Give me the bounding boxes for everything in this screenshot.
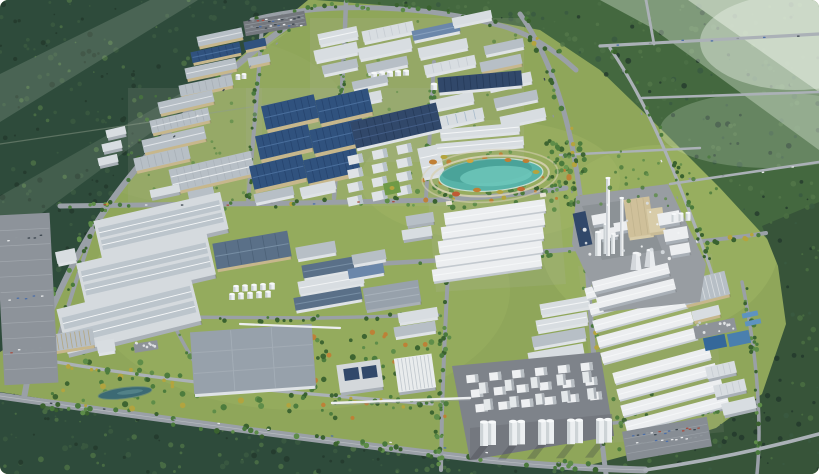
silorow bbox=[672, 212, 691, 222]
ell bbox=[452, 192, 460, 197]
ell bbox=[523, 159, 530, 163]
rect bbox=[446, 201, 452, 206]
ell bbox=[505, 158, 512, 162]
chim bbox=[619, 197, 624, 256]
silo bbox=[242, 73, 247, 79]
ell bbox=[441, 155, 448, 159]
ell bbox=[467, 159, 474, 163]
substation bbox=[336, 359, 384, 396]
aerial-render-canvas bbox=[0, 0, 819, 474]
process-column bbox=[595, 231, 601, 256]
bld bbox=[96, 339, 116, 357]
large-gray-building bbox=[190, 324, 316, 397]
ell bbox=[517, 187, 525, 191]
rect bbox=[361, 365, 378, 379]
ell bbox=[497, 190, 504, 194]
pv-array bbox=[343, 367, 360, 381]
flower-bed bbox=[429, 160, 437, 165]
silo bbox=[236, 74, 241, 80]
ell bbox=[390, 186, 395, 190]
industrial-park-screenshot bbox=[0, 0, 819, 474]
rack-building bbox=[394, 354, 437, 396]
silo bbox=[611, 233, 615, 254]
ell bbox=[473, 188, 481, 192]
ell bbox=[533, 170, 540, 174]
